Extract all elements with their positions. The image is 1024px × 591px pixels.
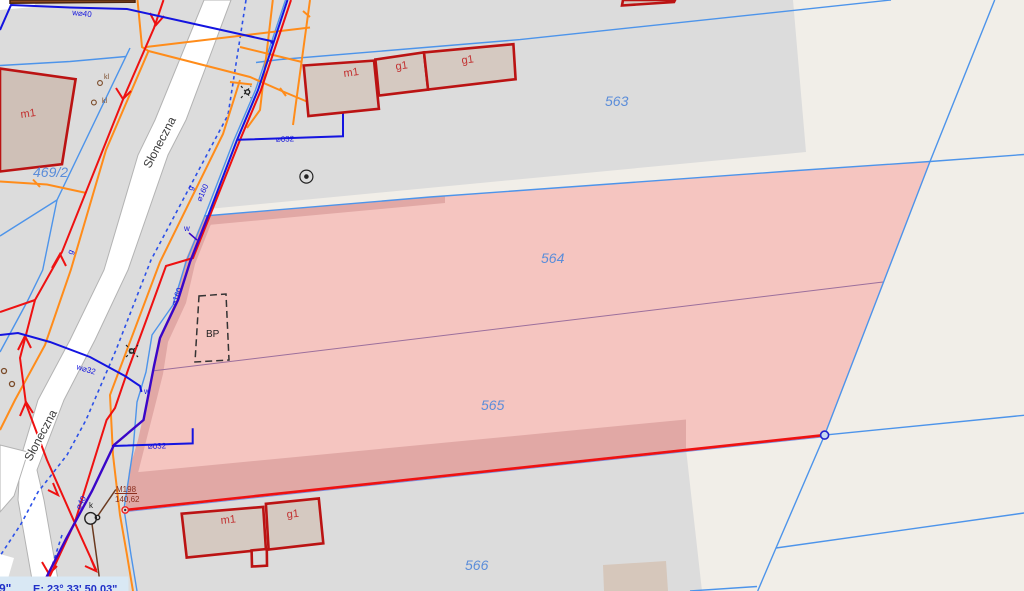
svg-text:m1: m1: [343, 66, 360, 80]
svg-text:kl: kl: [104, 74, 110, 81]
svg-text:⌀032: ⌀032: [276, 134, 295, 144]
svg-text:9": 9": [0, 582, 11, 591]
svg-text:565: 565: [481, 397, 505, 413]
svg-text:m1: m1: [220, 513, 236, 527]
svg-text:564: 564: [541, 250, 565, 266]
svg-text:g1: g1: [395, 59, 409, 73]
svg-text:g1: g1: [461, 53, 475, 67]
svg-text:kl: kl: [102, 98, 108, 105]
svg-text:563: 563: [605, 93, 629, 109]
svg-text:E: 23° 33' 50.03": E: 23° 33' 50.03": [33, 584, 117, 591]
svg-text:469/2: 469/2: [33, 164, 68, 180]
svg-text:m1: m1: [20, 107, 37, 121]
svg-text:140,62: 140,62: [115, 495, 140, 504]
svg-text:w: w: [143, 387, 150, 396]
svg-text:BP: BP: [206, 329, 220, 340]
svg-text:M198: M198: [116, 485, 137, 494]
svg-text:w: w: [183, 224, 190, 233]
svg-text:⌀032: ⌀032: [148, 441, 167, 451]
svg-text:g1: g1: [286, 508, 299, 521]
svg-text:566: 566: [465, 557, 489, 573]
